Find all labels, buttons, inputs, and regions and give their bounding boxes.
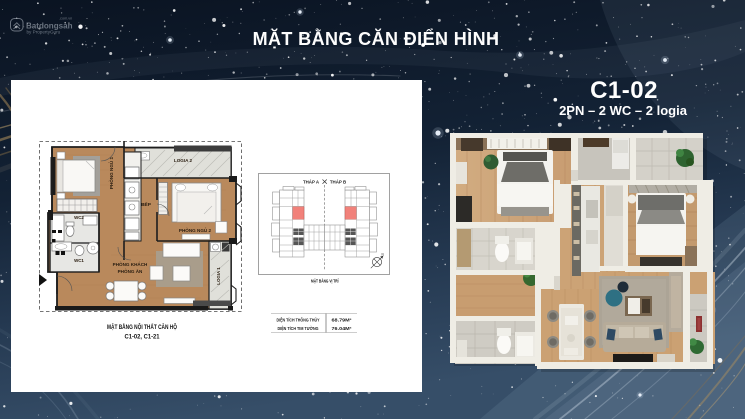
svg-text:WC1: WC1 <box>74 258 84 263</box>
svg-text:THÁP B: THÁP B <box>330 180 346 185</box>
svg-text:MẶT BẰNG VỊ TRÍ: MẶT BẰNG VỊ TRÍ <box>311 277 339 284</box>
svg-text:DIỆN TÍCH TIM TƯỜNG: DIỆN TÍCH TIM TƯỜNG <box>278 326 320 331</box>
svg-text:DIỆN TÍCH THÔNG THỦY: DIỆN TÍCH THÔNG THỦY <box>277 318 320 323</box>
svg-text:PHÒNG NGỦ 1: PHÒNG NGỦ 1 <box>107 156 114 189</box>
svg-text:BẾP: BẾP <box>141 201 152 208</box>
svg-text:LOGIA 1: LOGIA 1 <box>216 267 221 285</box>
svg-text:PHÒNG ĂN: PHÒNG ĂN <box>118 267 143 274</box>
svg-text:N: N <box>382 253 385 257</box>
svg-text:PHÒNG NGỦ 2: PHÒNG NGỦ 2 <box>179 226 212 233</box>
svg-text:THÁP A: THÁP A <box>303 180 320 185</box>
svg-text:76.04M²: 76.04M² <box>332 326 353 331</box>
svg-text:WC2: WC2 <box>74 215 84 220</box>
svg-text:C1-02, C1-21: C1-02, C1-21 <box>125 334 161 341</box>
svg-text:LOGIA 2: LOGIA 2 <box>174 158 193 163</box>
svg-text:68.79M²: 68.79M² <box>332 318 353 323</box>
svg-text:.com.vn: .com.vn <box>59 17 72 21</box>
svg-text:MẶT BẰNG NỘI THẤT CĂN HỘ: MẶT BẰNG NỘI THẤT CĂN HỘ <box>107 321 177 331</box>
svg-text:PHÒNG KHÁCH: PHÒNG KHÁCH <box>113 260 148 267</box>
